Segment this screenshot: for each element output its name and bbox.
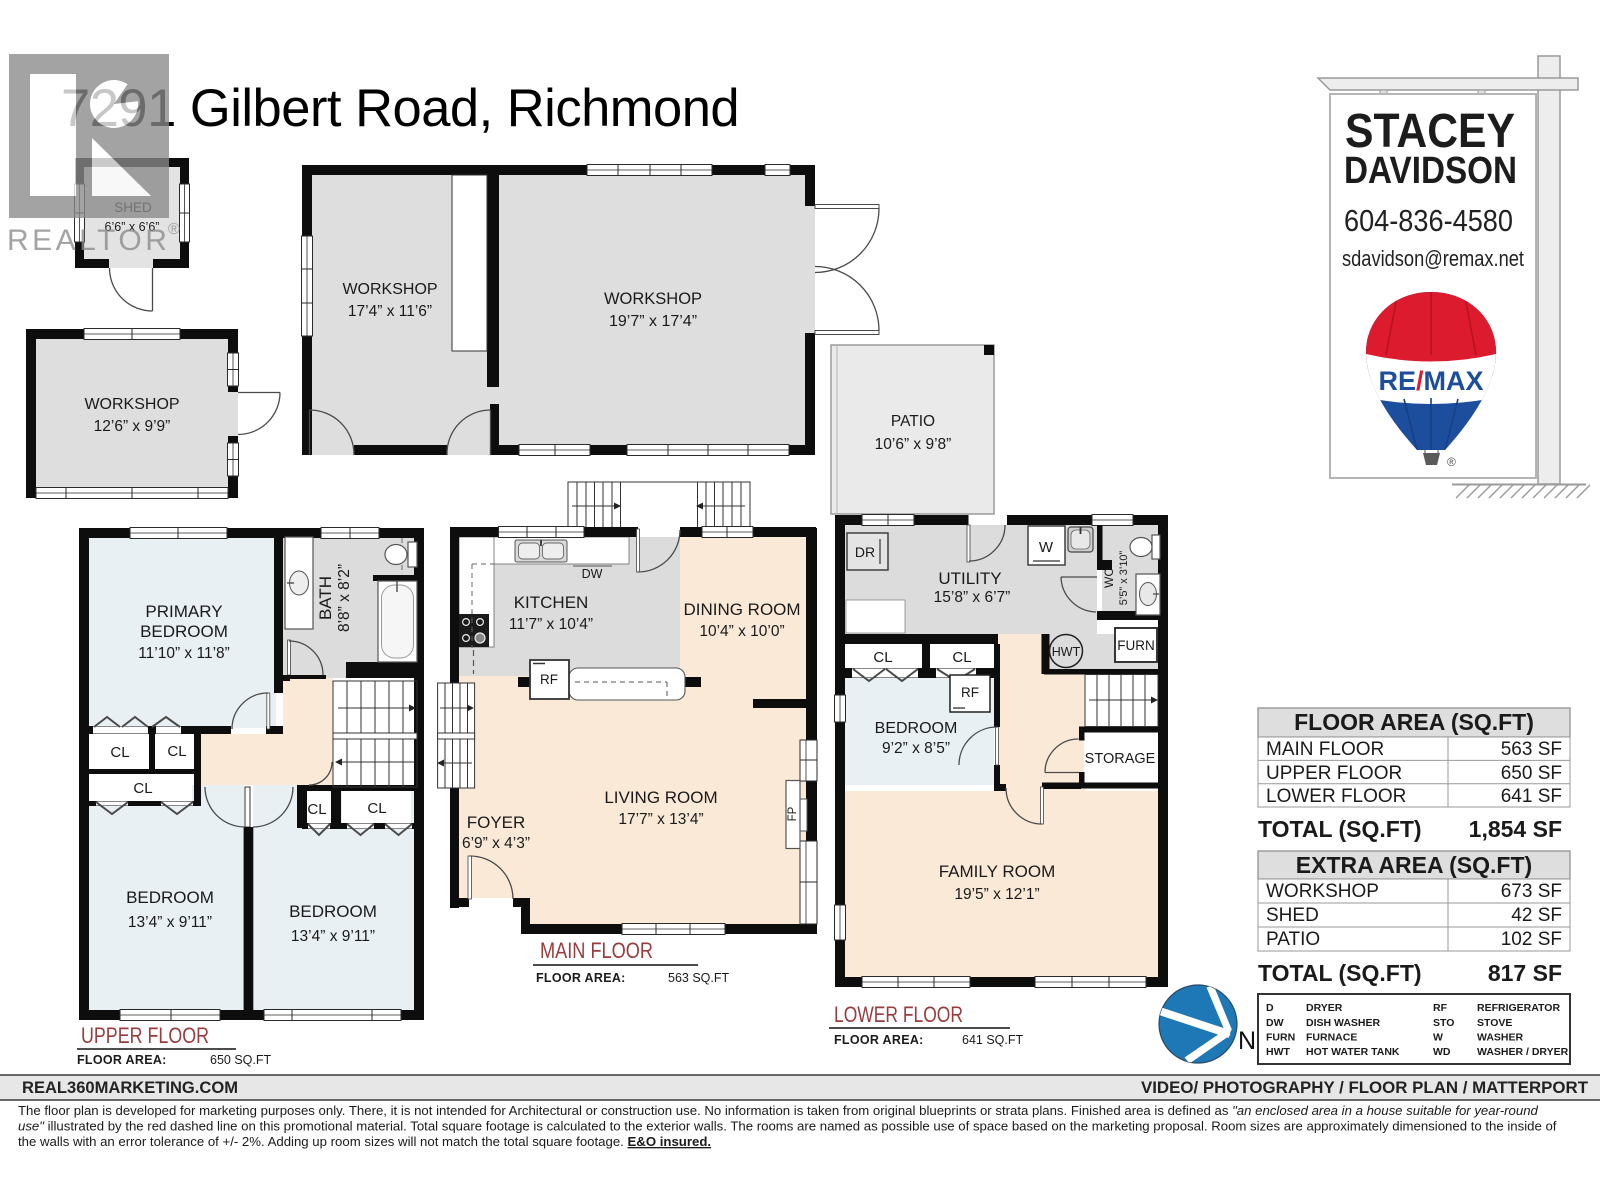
svg-text:UPPER FLOOR: UPPER FLOOR xyxy=(1266,763,1402,784)
svg-text:42 SF: 42 SF xyxy=(1511,905,1562,926)
svg-text:W: W xyxy=(1433,1032,1443,1044)
svg-text:CL: CL xyxy=(952,649,971,666)
svg-text:FURN: FURN xyxy=(1117,638,1155,653)
svg-text:CL: CL xyxy=(167,743,186,760)
svg-text:HWT: HWT xyxy=(1266,1046,1290,1058)
svg-text:DINING ROOM: DINING ROOM xyxy=(683,600,800,619)
svg-text:VIDEO/ PHOTOGRAPHY / FLOOR PLA: VIDEO/ PHOTOGRAPHY / FLOOR PLAN / MATTER… xyxy=(1141,1078,1589,1097)
svg-text:11’7” x 10’4”: 11’7” x 10’4” xyxy=(509,616,593,633)
svg-text:MAIN FLOOR: MAIN FLOOR xyxy=(540,938,653,963)
svg-text:673 SF: 673 SF xyxy=(1501,881,1562,902)
svg-text:FURNACE: FURNACE xyxy=(1306,1032,1357,1044)
svg-text:DRYER: DRYER xyxy=(1306,1002,1343,1014)
svg-text:PATIO: PATIO xyxy=(891,413,935,430)
svg-text:BEDROOM: BEDROOM xyxy=(289,902,377,921)
svg-text:STO: STO xyxy=(1433,1017,1454,1029)
svg-text:641 SQ.FT: 641 SQ.FT xyxy=(962,1033,1023,1047)
svg-text:UTILITY: UTILITY xyxy=(938,569,1001,588)
svg-text:sdavidson@remax.net: sdavidson@remax.net xyxy=(1342,246,1524,271)
svg-text:CL: CL xyxy=(133,780,152,797)
svg-text:CL: CL xyxy=(367,800,386,817)
svg-text:BEDROOM: BEDROOM xyxy=(126,888,214,907)
svg-text:HWT: HWT xyxy=(1052,645,1081,659)
svg-text:WORKSHOP: WORKSHOP xyxy=(604,290,702,308)
svg-text:RF: RF xyxy=(961,685,979,700)
svg-text:DW: DW xyxy=(582,567,603,581)
svg-text:19’5” x 12’1”: 19’5” x 12’1” xyxy=(954,886,1039,903)
svg-text:WASHER: WASHER xyxy=(1477,1032,1524,1044)
svg-text:REFRIGERATOR: REFRIGERATOR xyxy=(1477,1002,1560,1014)
svg-text:DAVIDSON: DAVIDSON xyxy=(1344,150,1517,192)
svg-text:15’8” x 6’7”: 15’8” x 6’7” xyxy=(934,589,1011,606)
svg-text:STORAGE: STORAGE xyxy=(1085,751,1156,767)
svg-text:®: ® xyxy=(168,221,180,238)
svg-text:604-836-4580: 604-836-4580 xyxy=(1344,203,1513,238)
svg-text:WORKSHOP: WORKSHOP xyxy=(1266,881,1379,902)
svg-text:FLOOR AREA (SQ.FT): FLOOR AREA (SQ.FT) xyxy=(1294,709,1534,735)
svg-text:N: N xyxy=(1238,1027,1256,1055)
svg-text:8’8” x 8’2”: 8’8” x 8’2” xyxy=(336,564,353,632)
svg-text:10’6” x 9’8”: 10’6” x 9’8” xyxy=(875,436,952,453)
svg-text:WORKSHOP: WORKSHOP xyxy=(84,396,179,413)
svg-text:CL: CL xyxy=(110,744,129,761)
svg-text:D: D xyxy=(1266,1002,1274,1014)
svg-text:®: ® xyxy=(1447,455,1456,469)
svg-text:The floor plan is developed fo: The floor plan is developed for marketin… xyxy=(18,1103,1539,1118)
svg-text:WORKSHOP: WORKSHOP xyxy=(342,281,437,298)
svg-text:641 SF: 641 SF xyxy=(1501,786,1562,807)
svg-text:17’4” x 11’6”: 17’4” x 11’6” xyxy=(348,303,432,320)
svg-text:13’4” x 9’11”: 13’4” x 9’11” xyxy=(128,914,212,931)
svg-text:563 SF: 563 SF xyxy=(1501,739,1562,760)
svg-text:PRIMARY: PRIMARY xyxy=(145,602,222,621)
svg-text:the walls with an error tolera: the walls with an error tolerance of +/-… xyxy=(18,1134,711,1149)
svg-text:DISH WASHER: DISH WASHER xyxy=(1306,1017,1381,1029)
svg-text:11’10” x 11’8”: 11’10” x 11’8” xyxy=(138,645,230,662)
svg-text:SHED: SHED xyxy=(1266,905,1319,926)
svg-text:FLOOR AREA:: FLOOR AREA: xyxy=(834,1033,924,1047)
svg-text:FLOOR AREA:: FLOOR AREA: xyxy=(77,1053,167,1067)
svg-text:CL: CL xyxy=(873,649,892,666)
svg-text:W: W xyxy=(1039,539,1054,556)
svg-text:RE/MAX: RE/MAX xyxy=(1378,366,1483,396)
svg-text:TOTAL (SQ.FT): TOTAL (SQ.FT) xyxy=(1258,816,1422,842)
svg-text:MAIN FLOOR: MAIN FLOOR xyxy=(1266,739,1384,760)
svg-text:10’4” x 10’0”: 10’4” x 10’0” xyxy=(699,623,784,640)
svg-text:13’4” x 9’11”: 13’4” x 9’11” xyxy=(291,928,375,945)
svg-text:6’9” x 4’3”: 6’9” x 4’3” xyxy=(462,835,530,852)
svg-text:102 SF: 102 SF xyxy=(1501,929,1562,950)
svg-text:REALTOR: REALTOR xyxy=(7,224,170,257)
svg-text:5’5” x 3’10”: 5’5” x 3’10” xyxy=(1118,550,1130,605)
svg-text:UPPER FLOOR: UPPER FLOOR xyxy=(81,1023,209,1048)
svg-text:FURN: FURN xyxy=(1266,1032,1295,1044)
svg-text:LOWER FLOOR: LOWER FLOOR xyxy=(834,1002,963,1027)
svg-text:RF: RF xyxy=(1433,1002,1448,1014)
svg-text:WD: WD xyxy=(1433,1046,1451,1058)
svg-text:563 SQ.FT: 563 SQ.FT xyxy=(668,971,729,985)
svg-text:BEDROOM: BEDROOM xyxy=(140,622,228,641)
svg-text:PATIO: PATIO xyxy=(1266,929,1320,950)
svg-text:LOWER FLOOR: LOWER FLOOR xyxy=(1266,786,1406,807)
svg-text:use" illustrated by the red da: use" illustrated by the red dashed line … xyxy=(18,1119,1557,1134)
svg-text:FOYER: FOYER xyxy=(467,813,526,832)
svg-text:1,854 SF: 1,854 SF xyxy=(1469,816,1562,842)
svg-text:DW: DW xyxy=(1266,1017,1284,1029)
svg-text:TOTAL (SQ.FT): TOTAL (SQ.FT) xyxy=(1258,960,1422,986)
svg-text:FLOOR AREA:: FLOOR AREA: xyxy=(536,971,626,985)
svg-text:650 SQ.FT: 650 SQ.FT xyxy=(210,1053,271,1067)
svg-text:FP: FP xyxy=(787,806,799,821)
svg-text:BEDROOM: BEDROOM xyxy=(875,720,958,737)
svg-text:REAL360MARKETING.COM: REAL360MARKETING.COM xyxy=(22,1078,238,1097)
svg-text:DR: DR xyxy=(855,544,875,560)
svg-text:12’6” x 9’9”: 12’6” x 9’9” xyxy=(94,418,171,435)
svg-text:17’7” x 13’4”: 17’7” x 13’4” xyxy=(618,811,703,828)
svg-text:CL: CL xyxy=(307,801,326,818)
svg-text:RF: RF xyxy=(540,672,558,687)
svg-text:650 SF: 650 SF xyxy=(1501,763,1562,784)
svg-text:9’2” x 8’5”: 9’2” x 8’5” xyxy=(882,740,950,757)
svg-text:FAMILY ROOM: FAMILY ROOM xyxy=(939,862,1056,881)
svg-text:KITCHEN: KITCHEN xyxy=(514,593,589,612)
svg-text:LIVING ROOM: LIVING ROOM xyxy=(604,788,717,807)
svg-text:WC: WC xyxy=(1102,568,1116,588)
svg-text:EXTRA AREA (SQ.FT): EXTRA AREA (SQ.FT) xyxy=(1296,852,1532,878)
svg-text:BATH: BATH xyxy=(316,576,335,620)
svg-text:817 SF: 817 SF xyxy=(1488,960,1562,986)
svg-text:HOT WATER TANK: HOT WATER TANK xyxy=(1306,1046,1400,1058)
svg-text:19’7” x 17’4”: 19’7” x 17’4” xyxy=(609,313,697,330)
svg-text:WASHER / DRYER: WASHER / DRYER xyxy=(1477,1046,1569,1058)
svg-text:STOVE: STOVE xyxy=(1477,1017,1512,1029)
